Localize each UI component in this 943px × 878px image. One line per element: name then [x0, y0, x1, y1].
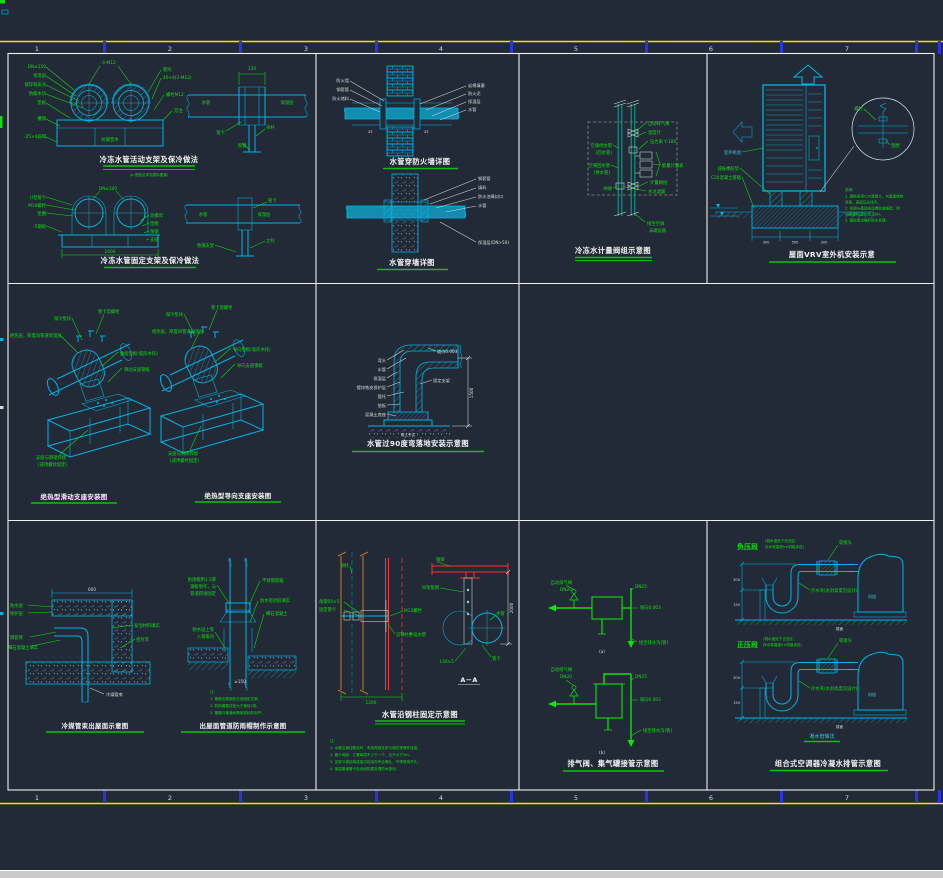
drawing-sliding-support-front: DN≤150 保温层 镀锌铁皮壳 防腐木块 垫板 槽钢 -25×4扁钢 4-M1…: [24, 60, 192, 146]
panel-title: 绝热型导向支座安装图: [205, 491, 272, 500]
leader-lines: [740, 148, 770, 208]
panel-vrv-unit: 300 500 300 螺栓 垫圈 室外机组 减振橡胶垫 C20混凝土基础 说明…: [710, 65, 914, 262]
label: 见注: [174, 107, 183, 114]
label: 保温层: [373, 375, 386, 382]
panel-elbow-floor: 1500 弯头 水管 保温层 镀锌铁皮保护层 管托 垫板 混凝土底座 坡向0.0…: [352, 345, 484, 452]
label: 钢柱: [340, 562, 349, 569]
label: 水管: [202, 99, 211, 106]
footer-strip: [0, 871, 943, 878]
note: 2. 机组与基础间设橡胶减振垫，用: [845, 206, 900, 211]
label: 绝热层，厚度同管道保温层: [10, 332, 62, 339]
label: 防雨帽用1.5厚: [188, 576, 217, 583]
label: 素土夯实: [401, 432, 416, 437]
caption: (b): [599, 750, 605, 755]
section-label: A－A: [460, 676, 477, 684]
panel-subtitle: (a-型做法详见国标图集): [130, 172, 169, 177]
label: 计量阀组: [650, 179, 668, 186]
panel-title: 冷媒管束出屋面示意图: [62, 721, 129, 730]
dim: 300: [733, 578, 741, 582]
note: 4. 保温管道管卡处设经防腐处理的木垫块。: [330, 766, 399, 771]
label: 存水弯(水封高度见设计): [811, 685, 858, 692]
panel-title: 冷冻水管活动支架及保冷做法: [100, 155, 199, 164]
ruler-number: 2: [168, 794, 172, 802]
panel-title: 屋面VRV室外机安装示意: [789, 250, 875, 259]
panel-title: 水管穿防火墙详图: [389, 157, 451, 166]
label: 管卡及螺栓: [211, 304, 233, 311]
label: (回水管): [596, 149, 613, 156]
airflow-up-arrow: [794, 65, 822, 84]
ruler-number: 4: [439, 794, 443, 802]
label: 闸阀: [603, 185, 612, 192]
note: 连接，表面压光找平。: [845, 200, 881, 205]
label: 自动排气阀: [648, 120, 669, 127]
label: 角钢: [238, 142, 247, 149]
label: 细石混凝土填实: [8, 644, 39, 651]
note: 注：: [330, 738, 337, 743]
panel-title: 水管穿墙详图: [388, 258, 435, 267]
label: 固定管卡: [319, 606, 337, 613]
label: 管道焊接固定: [190, 590, 216, 597]
dim: 1000: [105, 249, 116, 255]
note: 地脚螺栓固定(见大样)。: [845, 212, 884, 217]
label: 冷媒管束: [106, 691, 124, 698]
sub-caption: 凝水管做法: [809, 733, 834, 740]
panel-title: 冷冻水计量阀组示意图: [575, 246, 651, 255]
label: 钢板制作，与: [190, 583, 216, 590]
drawing-horizontal-collector: [548, 585, 638, 648]
panel-condensate: 负压段 (凝水盘处于负压区， 存水弯高度h≥机组余压) 软接头 存水弯(水封高度…: [733, 538, 907, 771]
drawing-column-plan: 钢柱 角钢50×5 固定管卡 M12螺栓 沿钢柱敷设水管 1200: [319, 552, 427, 706]
label: -25×4扁钢: [24, 133, 46, 140]
dim: 300: [733, 676, 741, 680]
label: 坡向0.003: [640, 604, 661, 611]
ruler-number: 7: [845, 45, 849, 53]
label: (供水管): [594, 169, 611, 176]
label: DN25: [635, 584, 647, 590]
label: (凝水盘处于负压区，: [765, 538, 799, 543]
label: 支座与钢梁焊接: [36, 454, 67, 461]
panel-meter-valve-group: 空调供水管 (回水管) 空调回水管 (供水管) 闸阀 自动排气阀 压力表 Y-1…: [575, 100, 684, 261]
panel-saddle-supports: 保冷垫块 管卡及螺栓 绝热层，厚度同管道保温层 曲面垫板(弧形木托) 滑动支座钢…: [10, 304, 281, 503]
label: 水管: [378, 366, 386, 373]
panel-title: 水管沿钢柱固定示意图: [381, 710, 458, 719]
label: 空调回水管: [589, 162, 611, 169]
panel-title: 排气阀、集气罐接管示意图: [567, 759, 658, 768]
drawing-column-section: 2000 钢梁 吊架角钢 水管 管卡 L50×5 A－A: [422, 556, 514, 685]
anchor-detail-circle: 螺栓 垫圈: [820, 98, 914, 192]
drawing-fixed-support-front: U型管卡 M10螺栓 垫圈 -5钢板 DN≤100 双螺母 垫圈 角钢 支座 1…: [28, 186, 163, 258]
label: 能量计量表: [662, 162, 684, 169]
label: 支座: [150, 236, 159, 243]
label: 角钢50×5: [319, 598, 340, 605]
ruler-number: 6: [709, 45, 713, 53]
dim: 150: [248, 66, 256, 72]
drawing-firewall-penetration: 防火墙 钢套管 防火堵料 岩棉填塞 防火泥 保温层 水管 25 25: [332, 66, 485, 156]
label: 立柱: [266, 237, 275, 244]
label: M12螺栓: [404, 607, 422, 614]
panel-title: 组合式空调器冷凝水排管示意图: [775, 759, 881, 768]
ruler-number: 1: [35, 794, 39, 802]
label: U型管卡: [30, 194, 47, 201]
label: 垫板: [37, 99, 46, 106]
top-ruler: 1 2 3 4 5 6 7: [0, 41, 943, 54]
label: -5钢板: [33, 223, 47, 230]
label: 岩棉填塞: [468, 82, 486, 89]
label: 防火堵料: [332, 95, 350, 102]
elbow-support: [388, 412, 428, 420]
dimension: 600: [52, 587, 132, 598]
dim: 150: [733, 603, 741, 607]
label: 存水弯(水封高度见设计): [811, 587, 858, 594]
label: 吊架角钢: [422, 584, 439, 591]
label: 镀锌铁皮壳: [25, 81, 47, 88]
label: 空调供水管: [591, 142, 613, 149]
label: 软接头: [839, 637, 853, 644]
label: 钢套管: [336, 86, 349, 93]
label: 管壳: [163, 66, 172, 73]
label: 导向支座钢板: [237, 362, 263, 369]
label: 防水油膏封口: [478, 193, 503, 200]
drawing-sliding-support-side: 150 水管 保温层 管卡 吊杆 角钢: [187, 66, 307, 152]
label: 楼面: [836, 626, 844, 631]
label: 防火泥: [468, 90, 481, 97]
ruler-number: 6: [709, 794, 713, 802]
label: DN≤150: [28, 64, 47, 70]
label: 保温层: [33, 72, 47, 79]
ruler-number: 2: [168, 45, 172, 53]
label: 管卡: [492, 655, 501, 662]
label: 绝热层，厚度同管道保温层: [152, 328, 204, 335]
label: 防水层: [10, 602, 24, 609]
label: 细石混凝土: [266, 610, 288, 617]
label: (凝水盘处于正压区，: [763, 636, 797, 641]
label: 温度计: [648, 129, 662, 136]
cad-canvas[interactable]: 1 2 3 4 5 6 7 1 2 3 4 5 6 7: [0, 0, 943, 878]
meter-pipes: [614, 100, 639, 216]
label: 防水层上卷: [193, 626, 215, 633]
panel-title: 水管过90度弯落地安装示意图: [366, 439, 469, 448]
ruler-number: 5: [574, 794, 578, 802]
label: 4-M12: [102, 60, 116, 66]
cad-application-window: 1 2 3 4 5 6 7 1 2 3 4 5 6 7: [0, 0, 943, 878]
label: 发泡材料填实: [134, 622, 160, 629]
label: 室外机组: [724, 149, 742, 156]
note: 1. 水管沿钢柱敷设时，采用角钢支架与钢柱预埋件连接。: [330, 745, 421, 750]
label: 混凝土底座: [365, 411, 386, 418]
note: 3. 基础周边做好防水处理。: [845, 218, 889, 223]
label: 钢套管: [478, 175, 491, 182]
label: 槽钢: [37, 115, 46, 122]
label: 保温层: [468, 98, 481, 105]
label: 软接头: [839, 539, 853, 546]
label: 入管箍内: [197, 633, 214, 640]
label: 保温层(DN>50): [478, 239, 509, 246]
note: 注：: [210, 689, 217, 694]
bottom-ruler: 1 2 3 4 5 6 7: [0, 790, 943, 804]
label: 机组: [868, 691, 876, 697]
label: 镀锌铁皮保护层: [357, 384, 386, 391]
label: M10螺栓: [28, 202, 46, 209]
dim: 600: [88, 587, 96, 592]
bottom-ruler-ticks: [103, 790, 941, 803]
caption: (a): [599, 649, 605, 654]
label: 钢套管: [10, 634, 24, 641]
label: 管卡: [216, 129, 225, 136]
panel-pipe-supports: DN≤150 保温层 镀锌铁皮壳 防腐木块 垫板 槽钢 -25×4扁钢 4-M1…: [24, 60, 307, 268]
label: DN≤100: [99, 186, 118, 192]
dim: 300: [763, 241, 771, 245]
panel-title: 冷冻水管固定支架及保冷做法: [101, 256, 200, 265]
drawing-wall-penetration: 钢套管 填料 防水油膏封口 水管 保温层(DN>50): [346, 174, 509, 252]
label: 防腐垫木: [101, 136, 119, 143]
vrv-unit-body: [763, 85, 825, 191]
label: 自动排气阀: [551, 579, 572, 586]
label: 填料: [478, 184, 487, 191]
dim: 25: [368, 130, 373, 134]
label: C20混凝土基础: [711, 174, 741, 181]
panel-air-vent: 自动排气阀 DN20 DN25 坡向0.003 接至排水沟(管) (a) 自动排…: [548, 579, 672, 771]
canvas-edge-marks: [0, 0, 8, 615]
label: 防火墙: [336, 77, 349, 84]
top-ruler-numbers: 1 2 3 4 5 6 7: [35, 45, 849, 53]
label: 管托: [378, 393, 386, 400]
ruler-number: 5: [574, 45, 578, 53]
label: 钢梁: [436, 556, 445, 563]
panel-title: 绝热型滑动支座安装图: [41, 492, 108, 501]
vrv-dimensions: 300 500 300: [752, 228, 838, 245]
label: 水管: [496, 610, 505, 617]
label: 管卡: [268, 197, 277, 204]
label: 水管: [468, 106, 476, 113]
label: 弯头: [378, 357, 386, 364]
label: 楼面: [836, 724, 844, 729]
dim: 2000: [509, 602, 514, 613]
note: 3. 支架与钢结构连接应经结构专业确认，不得现场开孔。: [330, 759, 421, 764]
label: 固定支架: [433, 377, 450, 384]
label: (或用螺栓固定): [38, 461, 67, 468]
top-ruler-ticks: [103, 41, 941, 54]
label: DN25: [635, 674, 647, 680]
note: 1. 管道出屋面处应设固定支架。: [210, 696, 261, 701]
label: DN20: [560, 587, 572, 593]
dim: 500: [792, 241, 800, 245]
label: 吊杆: [266, 124, 275, 131]
dim: 1500: [469, 387, 474, 398]
label: 垫圈: [891, 142, 900, 149]
label: 导向垫板(弧形木托): [233, 346, 271, 353]
note: 说明：: [845, 187, 856, 192]
label: 接至排水沟(管): [639, 639, 668, 646]
label: 螺栓M12: [166, 91, 184, 98]
label: 减振橡胶垫: [718, 165, 740, 172]
label: 垫圈: [150, 220, 159, 227]
label: 保冷垫块: [166, 311, 184, 318]
ruler-number: 3: [304, 794, 308, 802]
label: 水过滤器: [648, 188, 666, 195]
label: 防腐木块: [29, 90, 47, 97]
label: 水管: [478, 202, 486, 209]
drawing-rain-cap: 防雨帽用1.5厚 钢板制作，与 管道焊接固定 不锈钢管箍 防水密封胶填实 细石混…: [188, 558, 296, 691]
drawing-fixed-support-side: 水管 保温层 管卡 角钢支架 立柱: [185, 197, 301, 256]
label: 垫圈: [37, 210, 46, 217]
note: 2. 管卡间距：立管每层不少于一个，且不大于2m。: [330, 752, 412, 757]
label: 支座与钢梁焊接: [168, 450, 199, 457]
section-label: 负压段: [737, 542, 758, 551]
label: (或用螺栓固定): [170, 457, 199, 464]
label: 角钢支架: [197, 242, 215, 249]
label: 不锈钢管箍: [262, 577, 284, 584]
label: 螺栓: [854, 105, 863, 112]
dim: 300: [821, 241, 829, 245]
label: 滑动支座钢板: [124, 366, 150, 373]
label: 保温层: [258, 211, 272, 218]
bottom-ruler-numbers: 1 2 3 4 5 6 7: [35, 794, 849, 802]
airflow-left-arrow: [733, 122, 752, 142]
label: 双螺母: [150, 212, 164, 219]
dim: 1200: [366, 700, 377, 706]
drawing-vertical-collector: [548, 674, 641, 747]
label: 坡向0.003: [437, 348, 458, 355]
ruler-number: 3: [304, 45, 308, 53]
label: 40×4(2-M12): [163, 75, 192, 81]
label: 末端设备: [649, 227, 667, 234]
label: 防水密封胶填实: [260, 597, 291, 604]
label: 保温层: [281, 99, 295, 106]
ruler-number: 1: [35, 45, 39, 53]
label: 自动排气阀: [551, 666, 572, 673]
panel-wall-penetration: 防火墙 钢套管 防火堵料 岩棉填塞 防火泥 保温层 水管 25 25 水管穿防火…: [332, 66, 509, 270]
label: 水管: [199, 211, 208, 218]
elbow-base-plate: [384, 420, 432, 426]
dim: 25: [424, 130, 429, 134]
status-bar-edge[interactable]: [0, 871, 943, 878]
note: 3. 管箍与管道间隙用密封胶封严。: [210, 710, 265, 715]
label: 机组: [868, 593, 876, 599]
section-label: 正压段: [737, 640, 758, 649]
label: DN20: [560, 674, 572, 680]
label: 沿钢柱敷设水管: [396, 631, 427, 638]
label: 管卡及螺栓: [98, 308, 120, 315]
label: 接至空调: [647, 220, 664, 227]
label: 存水弯高度h≥机组余压): [763, 642, 803, 647]
dim: ≥150: [234, 679, 246, 684]
dim: 150: [733, 701, 741, 705]
panel-title: 出屋面管道防雨帽制作示意图: [200, 721, 287, 730]
label: 保冷垫块: [54, 315, 72, 322]
ruler-number: 7: [845, 794, 849, 802]
label: 垫板: [378, 402, 387, 409]
label: 存水弯高度h≥机组余压): [765, 544, 805, 549]
note: 1. 基础采用C20混凝土，与屋面结构: [845, 194, 904, 199]
saddle-assembly: [45, 331, 150, 457]
ruler-number: 4: [439, 45, 443, 53]
label: 曲面垫板(弧形木托): [120, 350, 158, 357]
label: L50×5: [440, 659, 454, 665]
label: 角钢: [150, 228, 159, 235]
label: 密封膏: [136, 636, 150, 643]
panel-steel-column: 钢柱 角钢50×5 固定管卡 M12螺栓 沿钢柱敷设水管 1200 2000 钢…: [319, 552, 514, 771]
label: 保护层: [10, 610, 24, 617]
elbow-insulation-inner: [416, 362, 458, 412]
rain-cap-notes: 注： 1. 管道出屋面处应设固定支架。 2. 防雨帽直径宜大于管径2倍。 3. …: [210, 689, 265, 715]
column-notes: 注： 1. 水管沿钢柱敷设时，采用角钢支架与钢柱预埋件连接。 2. 管卡间距：立…: [330, 738, 421, 771]
note: 2. 防雨帽直径宜大于管径2倍。: [210, 703, 260, 708]
panel-roof-penetrations: 600 防水层 保护层 钢套管 细石混凝土填实 发泡材料填实 密封膏 冷媒管束 …: [8, 558, 305, 732]
label: 坡向0.003: [640, 696, 661, 703]
label: 接至排水沟(管): [643, 727, 672, 734]
drawing-refrigerant-roof-exit: 600 防水层 保护层 钢套管 细石混凝土填实 发泡材料填实 密封膏 冷媒管束: [8, 587, 160, 702]
label: 压力表 Y-100: [650, 138, 676, 145]
